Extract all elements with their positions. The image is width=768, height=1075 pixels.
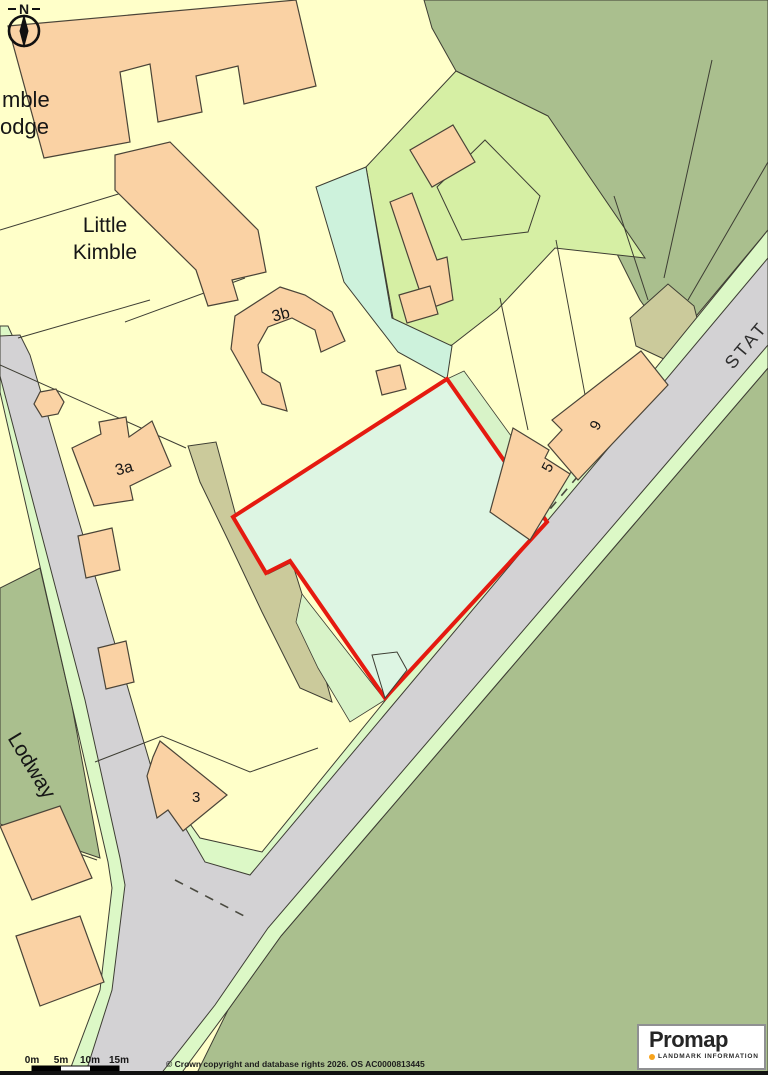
scale-tick-5: 5m: [54, 1055, 69, 1066]
map-viewport: mble odge Little Kimble 3b 3a 3 5 9 Lodw…: [0, 0, 768, 1075]
label-3: 3: [192, 789, 200, 806]
scale-bar-seg1: [32, 1066, 61, 1071]
building-mid-left-1: [78, 528, 120, 578]
outbuilding-small: [376, 365, 406, 395]
label-little-kimble-line2: Kimble: [73, 241, 137, 264]
label-kimble-lodge-line1: mble: [2, 87, 50, 112]
scale-tick-15: 15m: [109, 1055, 129, 1066]
os-map-canvas: mble odge Little Kimble 3b 3a 3 5 9 Lodw…: [0, 0, 768, 1075]
promap-tagline-text: LANDMARK INFORMATION: [658, 1053, 759, 1060]
scale-tick-0: 0m: [25, 1055, 40, 1066]
label-kimble-lodge-line2: odge: [0, 114, 49, 139]
bottom-rule: [0, 1071, 768, 1075]
promap-brand-text: Promap: [649, 1028, 764, 1052]
label-little-kimble-line1: Little: [83, 214, 127, 237]
promap-logo: Promap LANDMARK INFORMATION: [637, 1024, 766, 1070]
scale-tick-10: 10m: [80, 1055, 100, 1066]
landmark-dot-icon: [649, 1054, 655, 1060]
copyright-text: © Crown copyright and database rights 20…: [166, 1059, 425, 1069]
scale-bar-seg3: [90, 1066, 119, 1071]
compass-north-label: N: [19, 1, 29, 17]
